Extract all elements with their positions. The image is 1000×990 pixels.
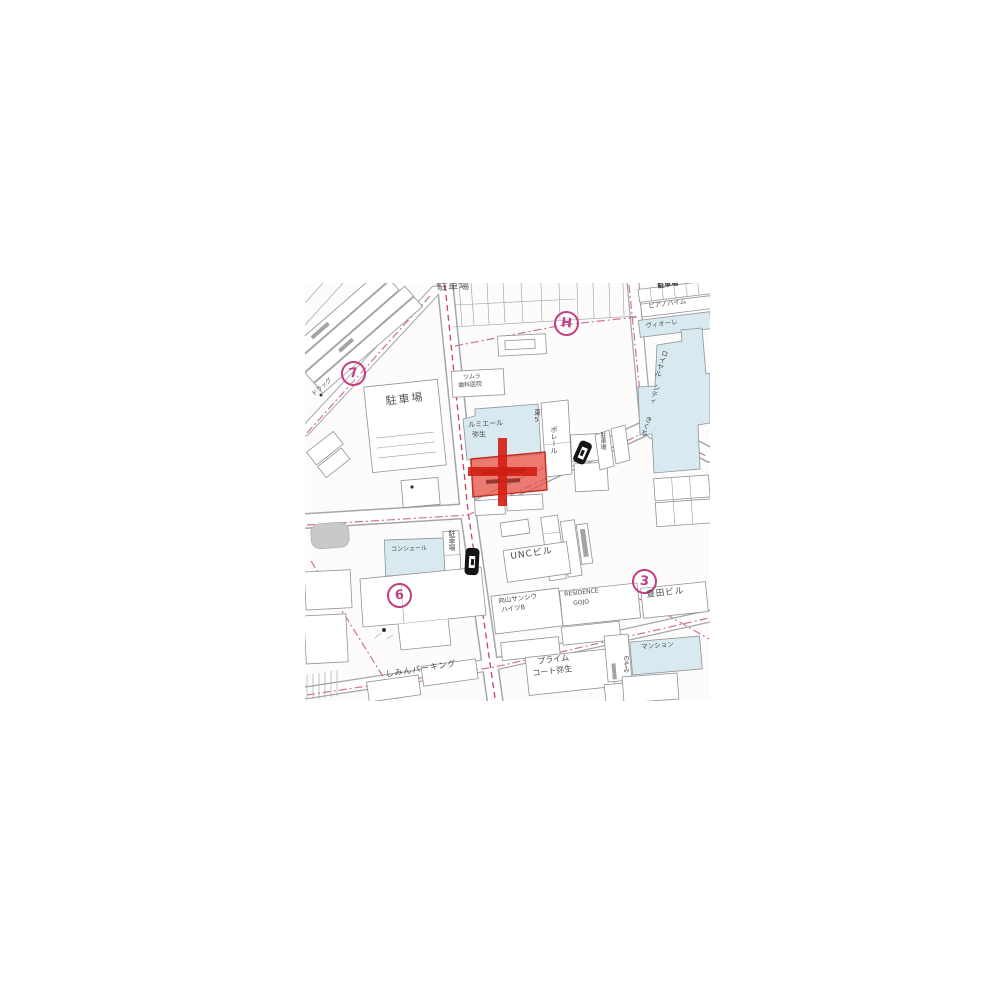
label-parking-vertical-1: 駐車場 <box>448 530 455 551</box>
label-dental-2: 歯科医院 <box>458 382 482 389</box>
residential-map: 7 H 6 3 駐車場 駐車場 ピアノハイム ヴィオーレ ロイヤル シティ きく… <box>305 283 710 701</box>
map-drawing <box>305 283 710 701</box>
marker-letter: H <box>560 315 572 331</box>
marker-number: 6 <box>394 588 404 604</box>
traffic-signal-icon <box>464 548 479 576</box>
pond-shape <box>310 522 350 550</box>
conciere-building <box>384 538 445 576</box>
signal-inner <box>577 446 587 459</box>
marker-number: 7 <box>348 365 359 381</box>
label-conciere: コンシェール <box>391 546 427 553</box>
screenshot-canvas: { "map": { "type": "japanese-residential… <box>0 0 1000 990</box>
label-parking-vertical-2: 駐車場 <box>599 432 605 450</box>
label-higashi5: 東5 <box>533 409 540 424</box>
poi-dot <box>320 394 323 397</box>
label-nozomi: のぞみ <box>622 655 628 673</box>
label-lumiere-2: 弥生 <box>472 431 486 439</box>
label-poreru: ポレール <box>550 426 557 454</box>
label-parking-top: 駐車場 <box>437 283 470 293</box>
signal-inner <box>469 555 476 567</box>
marker-number: 3 <box>639 574 649 590</box>
